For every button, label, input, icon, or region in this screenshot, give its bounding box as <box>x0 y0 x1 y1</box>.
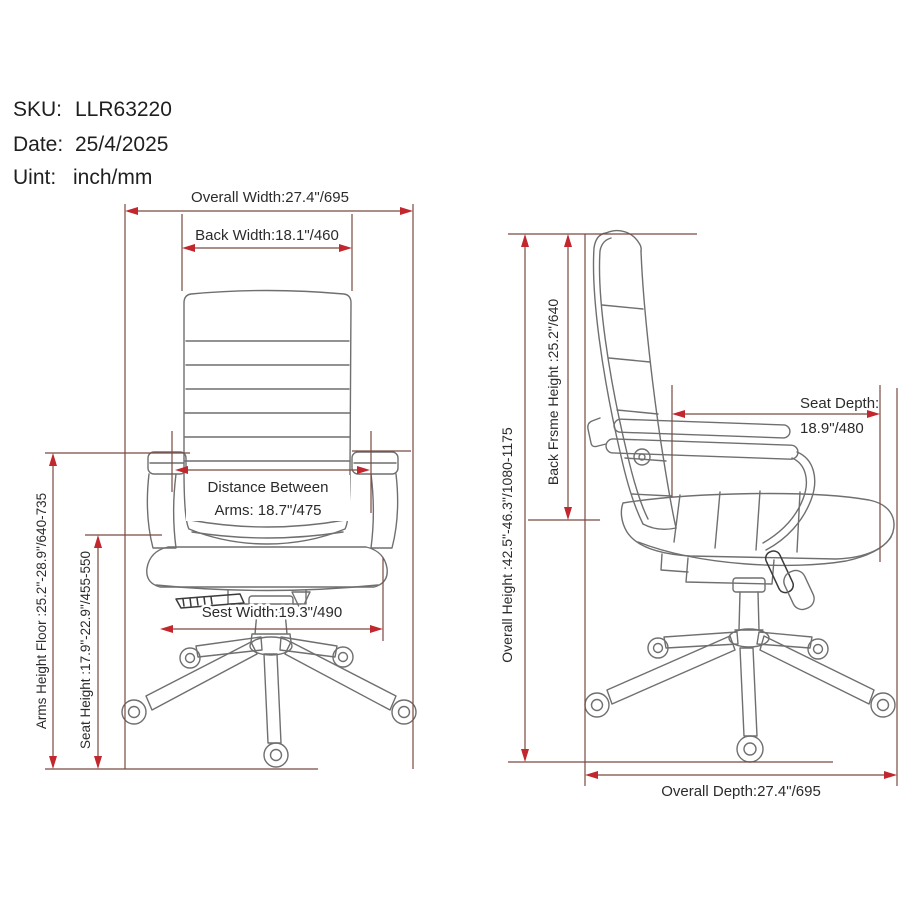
side-view-dimensions: Overall Height :42.5"-46.3"/1080-1175 Ba… <box>499 234 897 800</box>
back-frame-height-label: Back Frsme Height :25.2"/640 <box>545 299 561 485</box>
side-gas-column <box>729 578 769 647</box>
overall-height-dimension: Overall Height :42.5"-46.3"/1080-1175 <box>499 234 529 762</box>
arms-height-dimension: Arms Height Floor :25.2"-28.9"/640-735 <box>34 453 57 769</box>
unit-value: inch/mm <box>73 166 152 189</box>
back-width-label: Back Width:18.1"/460 <box>195 227 339 244</box>
side-base-legs <box>607 632 874 736</box>
overall-depth-dimension: Overall Depth:27.4"/695 <box>585 771 897 800</box>
arms-distance-label-line1: Distance Between <box>208 479 329 496</box>
front-base-legs <box>146 637 396 743</box>
seat-depth-label-line1: Seat Depth: <box>800 395 879 412</box>
date-label: Date: <box>13 133 63 156</box>
overall-height-label: Overall Height :42.5"-46.3"/1080-1175 <box>499 427 515 663</box>
side-armrest <box>606 419 815 550</box>
front-left-armrest <box>147 452 186 548</box>
front-view-chair-art <box>122 291 416 768</box>
date-value: 25/4/2025 <box>75 133 168 156</box>
front-right-armrest <box>352 452 398 548</box>
unit-label: Uint: <box>13 166 56 189</box>
seat-height-dimension: Seat Height :17.9"-22.9"/455-550 <box>78 535 102 769</box>
back-frame-height-dimension: Back Frsme Height :25.2"/640 <box>545 234 572 520</box>
overall-width-dimension: Overall Width:27.4"/695 <box>125 189 413 215</box>
back-width-dimension: Back Width:18.1"/460 <box>182 214 352 291</box>
overall-width-label: Overall Width:27.4"/695 <box>191 189 349 206</box>
arms-distance-label-line2: Arms: 18.7"/475 <box>214 502 321 519</box>
side-backrest <box>588 231 676 530</box>
seat-depth-label-line2: 18.9"/480 <box>800 420 864 437</box>
spec-diagram: SKU: LLR63220 Date: 25/4/2025 Uint: inch… <box>0 0 900 900</box>
front-casters <box>122 647 416 767</box>
seat-width-dimension: Sest Width:19.3"/490 <box>160 558 383 641</box>
arms-height-label: Arms Height Floor :25.2"-28.9"/640-735 <box>34 493 49 729</box>
seat-width-label: Sest Width:19.3"/490 <box>202 604 342 621</box>
seat-depth-dimension: Seat Depth: 18.9"/480 <box>672 385 880 562</box>
sku-value: LLR63220 <box>75 98 172 121</box>
seat-height-label: Seat Height :17.9"-22.9"/455-550 <box>78 551 93 749</box>
arms-distance-dimension: Distance Between Arms: 18.7"/475 <box>172 431 371 521</box>
side-view-chair-art <box>585 231 895 762</box>
overall-depth-label: Overall Depth:27.4"/695 <box>661 783 821 800</box>
header: SKU: LLR63220 Date: 25/4/2025 Uint: inch… <box>13 98 172 189</box>
front-view-dimensions: Overall Width:27.4"/695 Back Width:18.1"… <box>34 189 413 769</box>
sku-label: SKU: <box>13 98 62 121</box>
chair-spec-sheet: SKU: LLR63220 Date: 25/4/2025 Uint: inch… <box>0 0 900 900</box>
front-seat <box>147 547 387 591</box>
